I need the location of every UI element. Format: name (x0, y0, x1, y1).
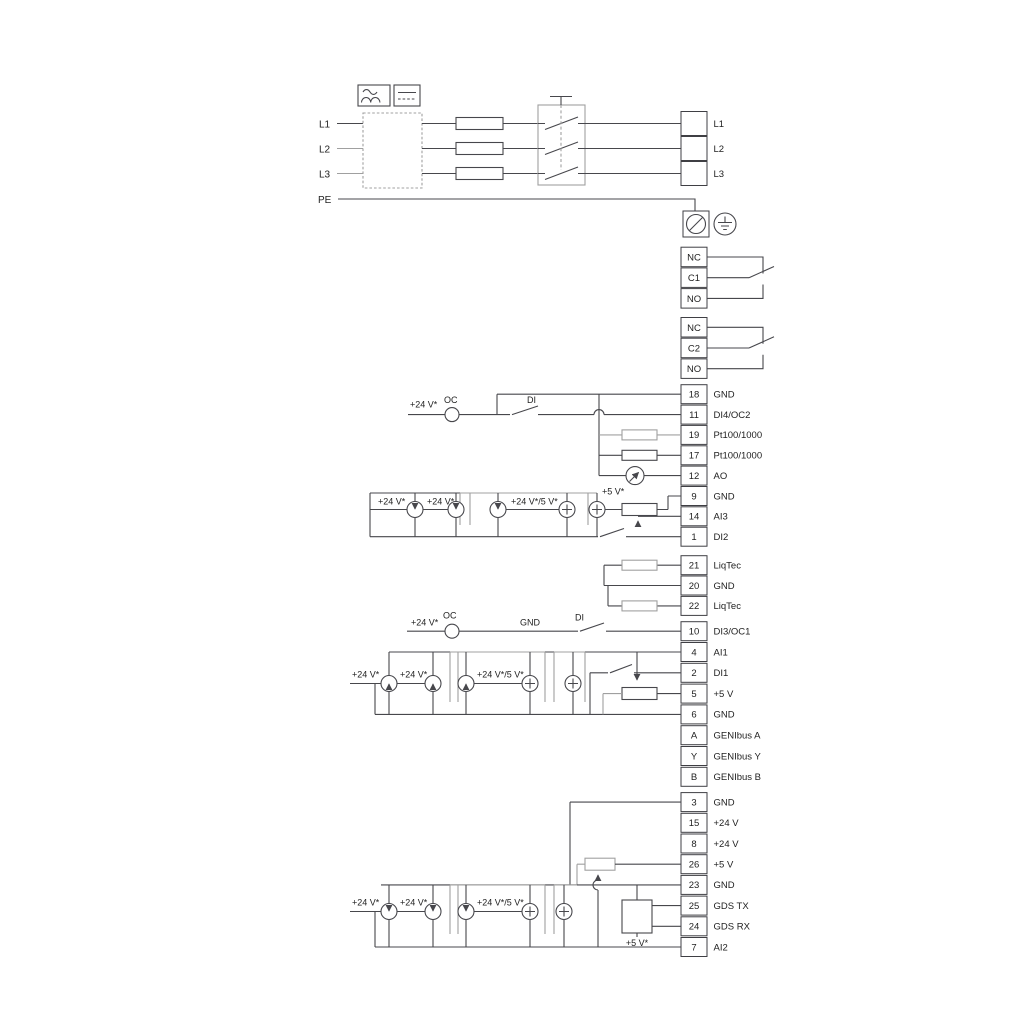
pe-line (338, 199, 695, 211)
current-source-symbol (425, 885, 441, 947)
terminal-number: 8 (691, 839, 696, 850)
di4-oc2-wiring: +24 V* OC DI (408, 394, 681, 475)
terminal-number: 10 (689, 627, 700, 638)
oc-label: OC (443, 611, 457, 621)
plus24v-5v-label: +24 V*/5 V* (511, 497, 558, 507)
terminal-number: 14 (689, 512, 700, 523)
plus24v-label: +24 V* (352, 670, 380, 680)
mains-out-label-l1: L1 (714, 119, 725, 130)
dc-symbol (394, 85, 420, 106)
terminal-number: Y (691, 751, 698, 762)
oc-label: OC (444, 395, 458, 405)
terminal-number: 7 (691, 942, 696, 953)
terminal-number: 2 (691, 668, 696, 679)
plus5v-label: +5 V* (602, 487, 625, 497)
current-source-symbol (458, 652, 474, 714)
terminal-label: +24 V (714, 818, 740, 829)
terminal-number: 17 (689, 451, 700, 462)
terminal-label: GENIbus Y (714, 751, 762, 762)
plus24v-label: +24 V* (378, 497, 406, 507)
terminal-label: DI1 (714, 668, 729, 679)
terminal-label: GND (714, 581, 735, 592)
io-terminal-block-1: 18 11 19 17 12 9 14 1 GND DI4/OC2 Pt100/… (370, 385, 762, 547)
terminal-label: AO (714, 471, 728, 482)
terminal-label: AI3 (714, 512, 728, 523)
voltage-source-symbol (559, 493, 575, 537)
terminal-label: +24 V (714, 839, 740, 850)
terminal-number: 24 (689, 922, 700, 933)
io-terminal-block-2: 10 4 2 5 6 A Y B DI3/OC1 AI1 DI1 +5 V GN… (350, 611, 762, 787)
terminal-number: 5 (691, 689, 696, 700)
fuse-l2 (456, 143, 503, 155)
io-terminal-block-3: 3 15 8 26 23 25 24 7 GND +24 V +24 V +5 … (350, 793, 751, 957)
mains-out-label-l3: L3 (714, 169, 725, 180)
plus24v-5v-label: +24 V*/5 V* (477, 898, 524, 908)
terminal-number: 22 (689, 601, 700, 612)
fuse-l3 (456, 168, 503, 180)
terminal-label: Pt100/1000 (714, 430, 763, 441)
current-source-symbol (381, 885, 397, 947)
terminal-label: DI3/OC1 (714, 627, 751, 638)
mains-output-terminals: L1 L2 L3 (681, 112, 724, 186)
terminal-label: DI4/OC2 (714, 410, 751, 421)
relay-2-terminals: NC C2 NO (681, 318, 774, 379)
gnd-label: GND (520, 618, 541, 628)
terminal-label: LiqTec (714, 561, 742, 572)
terminal-label: GND (714, 880, 735, 891)
di-switch-blade (580, 623, 604, 631)
terminal-label: DI2 (714, 532, 729, 543)
sensor-supply-chain-ai2: +24 V* +24 V* +24 V*/5 V* (350, 885, 572, 947)
plus24v-5v-label: +24 V*/5 V* (477, 670, 524, 680)
pt100-resistor-19 (599, 430, 681, 440)
di3-oc1-wiring: +24 V* OC GND DI (407, 611, 681, 639)
di-label: DI (527, 395, 536, 405)
relay1-nc: NC (687, 253, 701, 264)
terminal-number: 20 (689, 581, 700, 592)
current-source-symbol (407, 493, 423, 537)
voltage-source-symbol (522, 652, 538, 714)
emc-filter-box (363, 113, 422, 188)
mains-in-label-l3: L3 (319, 170, 331, 181)
terminal-number: 26 (689, 860, 700, 871)
voltage-source-symbol (522, 885, 538, 947)
plus24v-label: +24 V* (400, 670, 428, 680)
terminal-number: 6 (691, 710, 696, 721)
voltage-source-symbol (556, 885, 572, 947)
relay-1-terminals: NC C1 NO (681, 247, 774, 308)
terminal-label: AI1 (714, 647, 728, 658)
terminal-label: GENIbus A (714, 731, 762, 742)
terminal-number: 3 (691, 797, 696, 808)
plus24v-label: +24 V* (411, 618, 439, 628)
mains-in-label-l2: L2 (319, 145, 331, 156)
terminal-number: 15 (689, 818, 700, 829)
liqtec-terminals: 21 20 22 LiqTec GND LiqTec (604, 556, 741, 616)
relay2-c2: C2 (688, 344, 700, 355)
terminal-label: GENIbus B (714, 772, 762, 783)
terminal-label: +5 V (714, 689, 734, 700)
voltage-source-symbol (589, 493, 605, 537)
plus24v-label: +24 V* (352, 898, 380, 908)
mains-input-section: L1 L2 L3 PE (318, 85, 695, 211)
relay1-contact (707, 257, 774, 298)
terminal-label: +5 V (714, 860, 734, 871)
mains-in-label-l1: L1 (319, 120, 331, 131)
terminal-label: LiqTec (714, 601, 742, 612)
gnd3-link (570, 802, 681, 885)
current-source-symbol (381, 652, 397, 714)
terminal-label: GND (714, 710, 735, 721)
terminal-label: GND (714, 797, 735, 808)
sensor-supply-chain-ai1: +24 V* +24 V* +24 V*/5 V* (350, 652, 585, 714)
terminal-number: 19 (689, 430, 700, 441)
sensor-supply-chain-ai3: +24 V* +24 V* +24 V*/5 V* (370, 487, 625, 537)
ai1-potentiometer (603, 652, 681, 714)
pt100-resistor-17 (599, 450, 681, 460)
terminal-number: A (691, 731, 698, 742)
relay1-c1: C1 (688, 273, 700, 284)
terminal-number: 9 (691, 491, 696, 502)
open-collector-symbol (445, 624, 459, 638)
terminal-number: 1 (691, 532, 696, 543)
relay2-contact (707, 327, 774, 368)
voltage-source-symbol (565, 652, 581, 714)
terminal-number: 4 (691, 647, 696, 658)
terminal-label: GND (714, 390, 735, 401)
terminal-number: B (691, 772, 697, 783)
di-label: DI (575, 613, 584, 623)
mains-out-label-l2: L2 (714, 144, 725, 155)
screw-terminal (683, 211, 709, 237)
plus24v-label: +24 V* (400, 898, 428, 908)
current-source-symbol (458, 885, 474, 947)
terminal-number: 21 (689, 561, 700, 572)
ai3-potentiometer (622, 496, 681, 524)
di-switch-blade (512, 406, 538, 415)
current-source-symbol (425, 652, 441, 714)
terminal-number: 11 (689, 410, 699, 421)
current-source-symbol (490, 493, 506, 537)
terminal-number: 18 (689, 390, 700, 401)
liqtec-sensor-resistor (604, 560, 681, 585)
relay1-no: NO (687, 294, 701, 305)
di2-switch (370, 529, 681, 537)
relay2-nc: NC (687, 323, 701, 334)
terminal-number: 25 (689, 901, 700, 912)
main-switch (538, 97, 585, 186)
relay2-no: NO (687, 364, 701, 375)
terminal-label: GDS TX (714, 901, 750, 912)
terminal-label: Pt100/1000 (714, 451, 763, 462)
fuse-l1 (456, 118, 503, 130)
terminal-label: GDS RX (714, 922, 751, 933)
terminal-label: AI2 (714, 942, 728, 953)
gds-sensor-box: +5 V* (622, 885, 681, 948)
wiring-diagram-page: L1 L2 L3 PE (0, 0, 1024, 1024)
wiring-diagram: L1 L2 L3 PE (0, 0, 1024, 1024)
switch-handle (550, 97, 572, 106)
terminal-label: GND (714, 491, 735, 502)
terminal-number: 12 (689, 471, 700, 482)
liqtec-sensor-resistor (608, 586, 681, 611)
plus24v-label: +24 V* (410, 400, 438, 410)
terminal-number: 23 (689, 880, 700, 891)
earth-symbol (714, 213, 736, 235)
open-collector-symbol (445, 408, 459, 422)
analog-output-meter (599, 467, 681, 485)
pe-label: PE (318, 195, 332, 206)
ac-symbol (358, 85, 390, 106)
